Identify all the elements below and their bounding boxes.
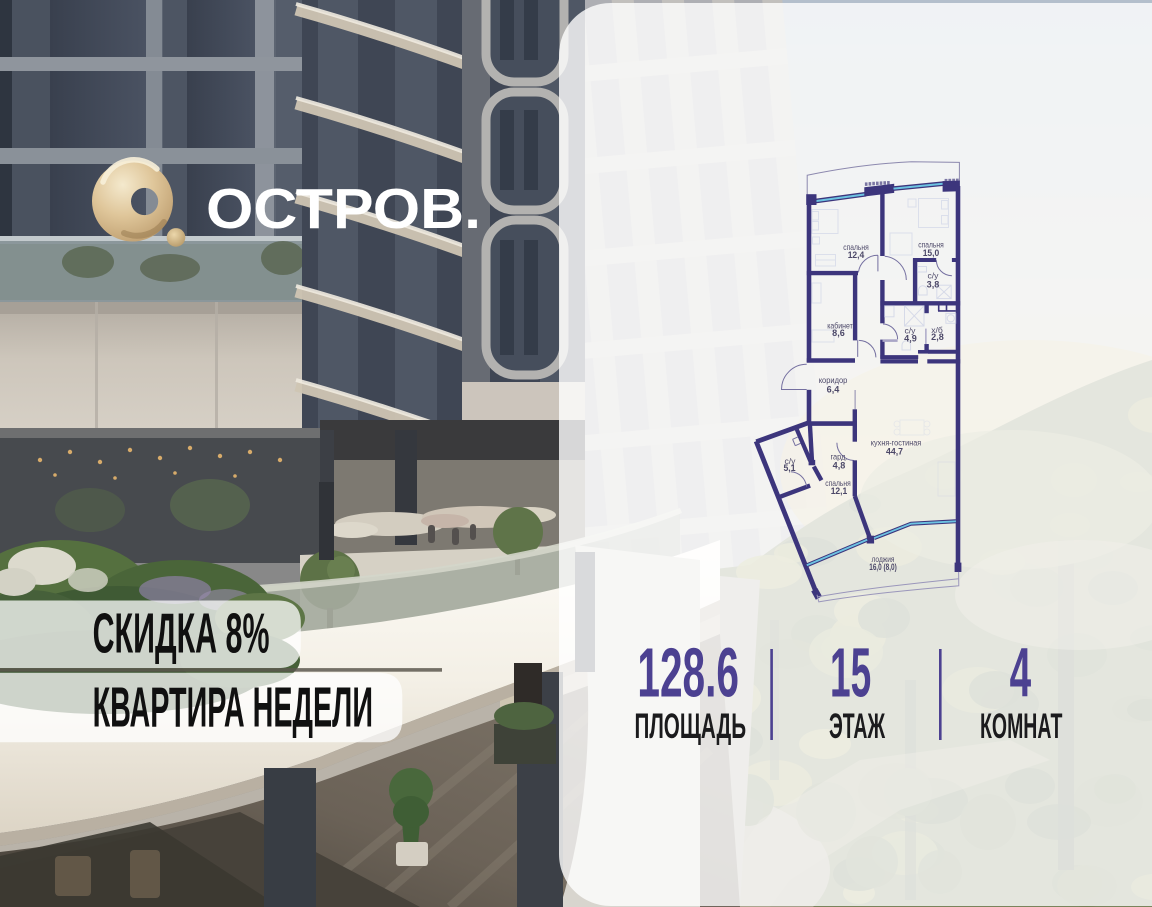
svg-text:128.6: 128.6	[637, 634, 739, 712]
svg-text:15: 15	[830, 634, 871, 712]
svg-text:2,8: 2,8	[931, 332, 944, 342]
svg-text:СКИДКА 8%: СКИДКА 8%	[93, 602, 270, 665]
svg-text:6,4: 6,4	[827, 385, 840, 395]
svg-text:5,1: 5,1	[784, 463, 796, 473]
svg-text:ЭТАЖ: ЭТАЖ	[829, 706, 886, 746]
svg-text:КВАРТИРА НЕДЕЛИ: КВАРТИРА НЕДЕЛИ	[93, 677, 373, 740]
svg-text:44,7: 44,7	[886, 447, 903, 457]
svg-text:4: 4	[1010, 634, 1032, 712]
svg-text:16,0 (8,0): 16,0 (8,0)	[869, 562, 897, 572]
svg-text:ПЛОЩАДЬ: ПЛОЩАДЬ	[635, 706, 747, 746]
svg-text:15,0: 15,0	[923, 248, 940, 258]
svg-text:3,8: 3,8	[927, 280, 940, 290]
svg-text:12,1: 12,1	[831, 486, 848, 496]
svg-text:4,8: 4,8	[833, 461, 846, 471]
svg-text:4,9: 4,9	[904, 333, 917, 343]
svg-text:коридор: коридор	[819, 375, 848, 385]
svg-text:КОМНАТ: КОМНАТ	[980, 706, 1063, 746]
svg-text:12,4: 12,4	[848, 250, 865, 260]
svg-text:ОСТРОВ.: ОСТРОВ.	[206, 178, 481, 241]
svg-text:8,6: 8,6	[832, 328, 845, 338]
